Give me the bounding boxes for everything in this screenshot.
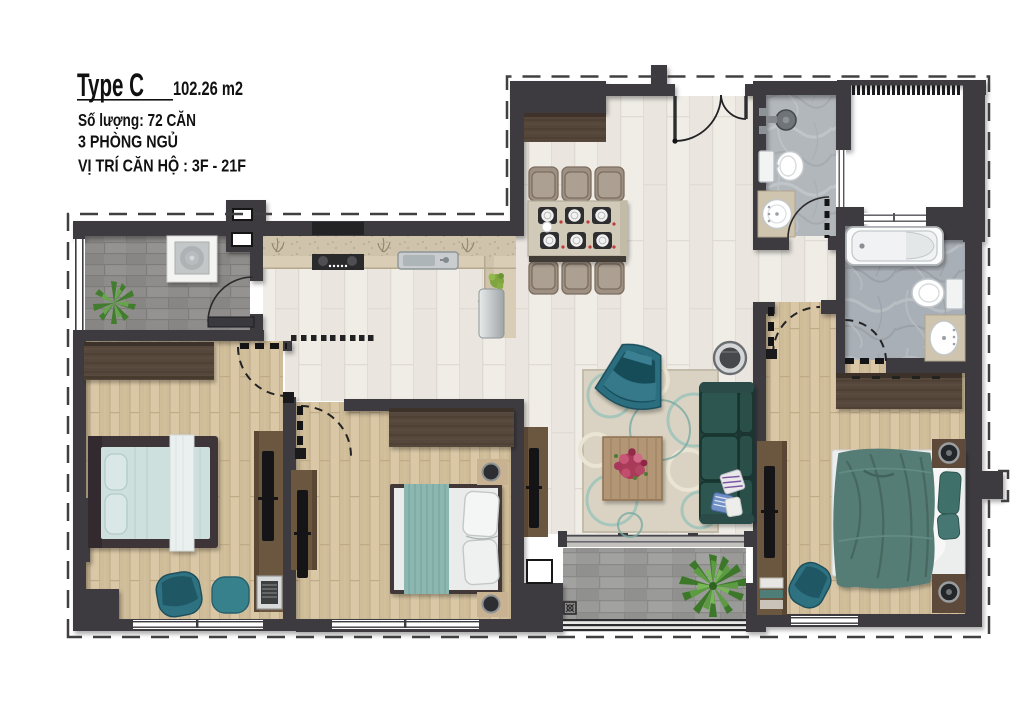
svg-text:102.26 m2: 102.26 m2 xyxy=(173,79,243,100)
svg-text:VỊ TRÍ CĂN HỘ : 3F - 21F: VỊ TRÍ CĂN HỘ : 3F - 21F xyxy=(78,155,246,176)
svg-text:3 PHÒNG NGỦ: 3 PHÒNG NGỦ xyxy=(78,131,178,152)
svg-text:Số lượng: 72 CĂN: Số lượng: 72 CĂN xyxy=(78,109,196,130)
svg-text:Type C: Type C xyxy=(77,67,144,103)
